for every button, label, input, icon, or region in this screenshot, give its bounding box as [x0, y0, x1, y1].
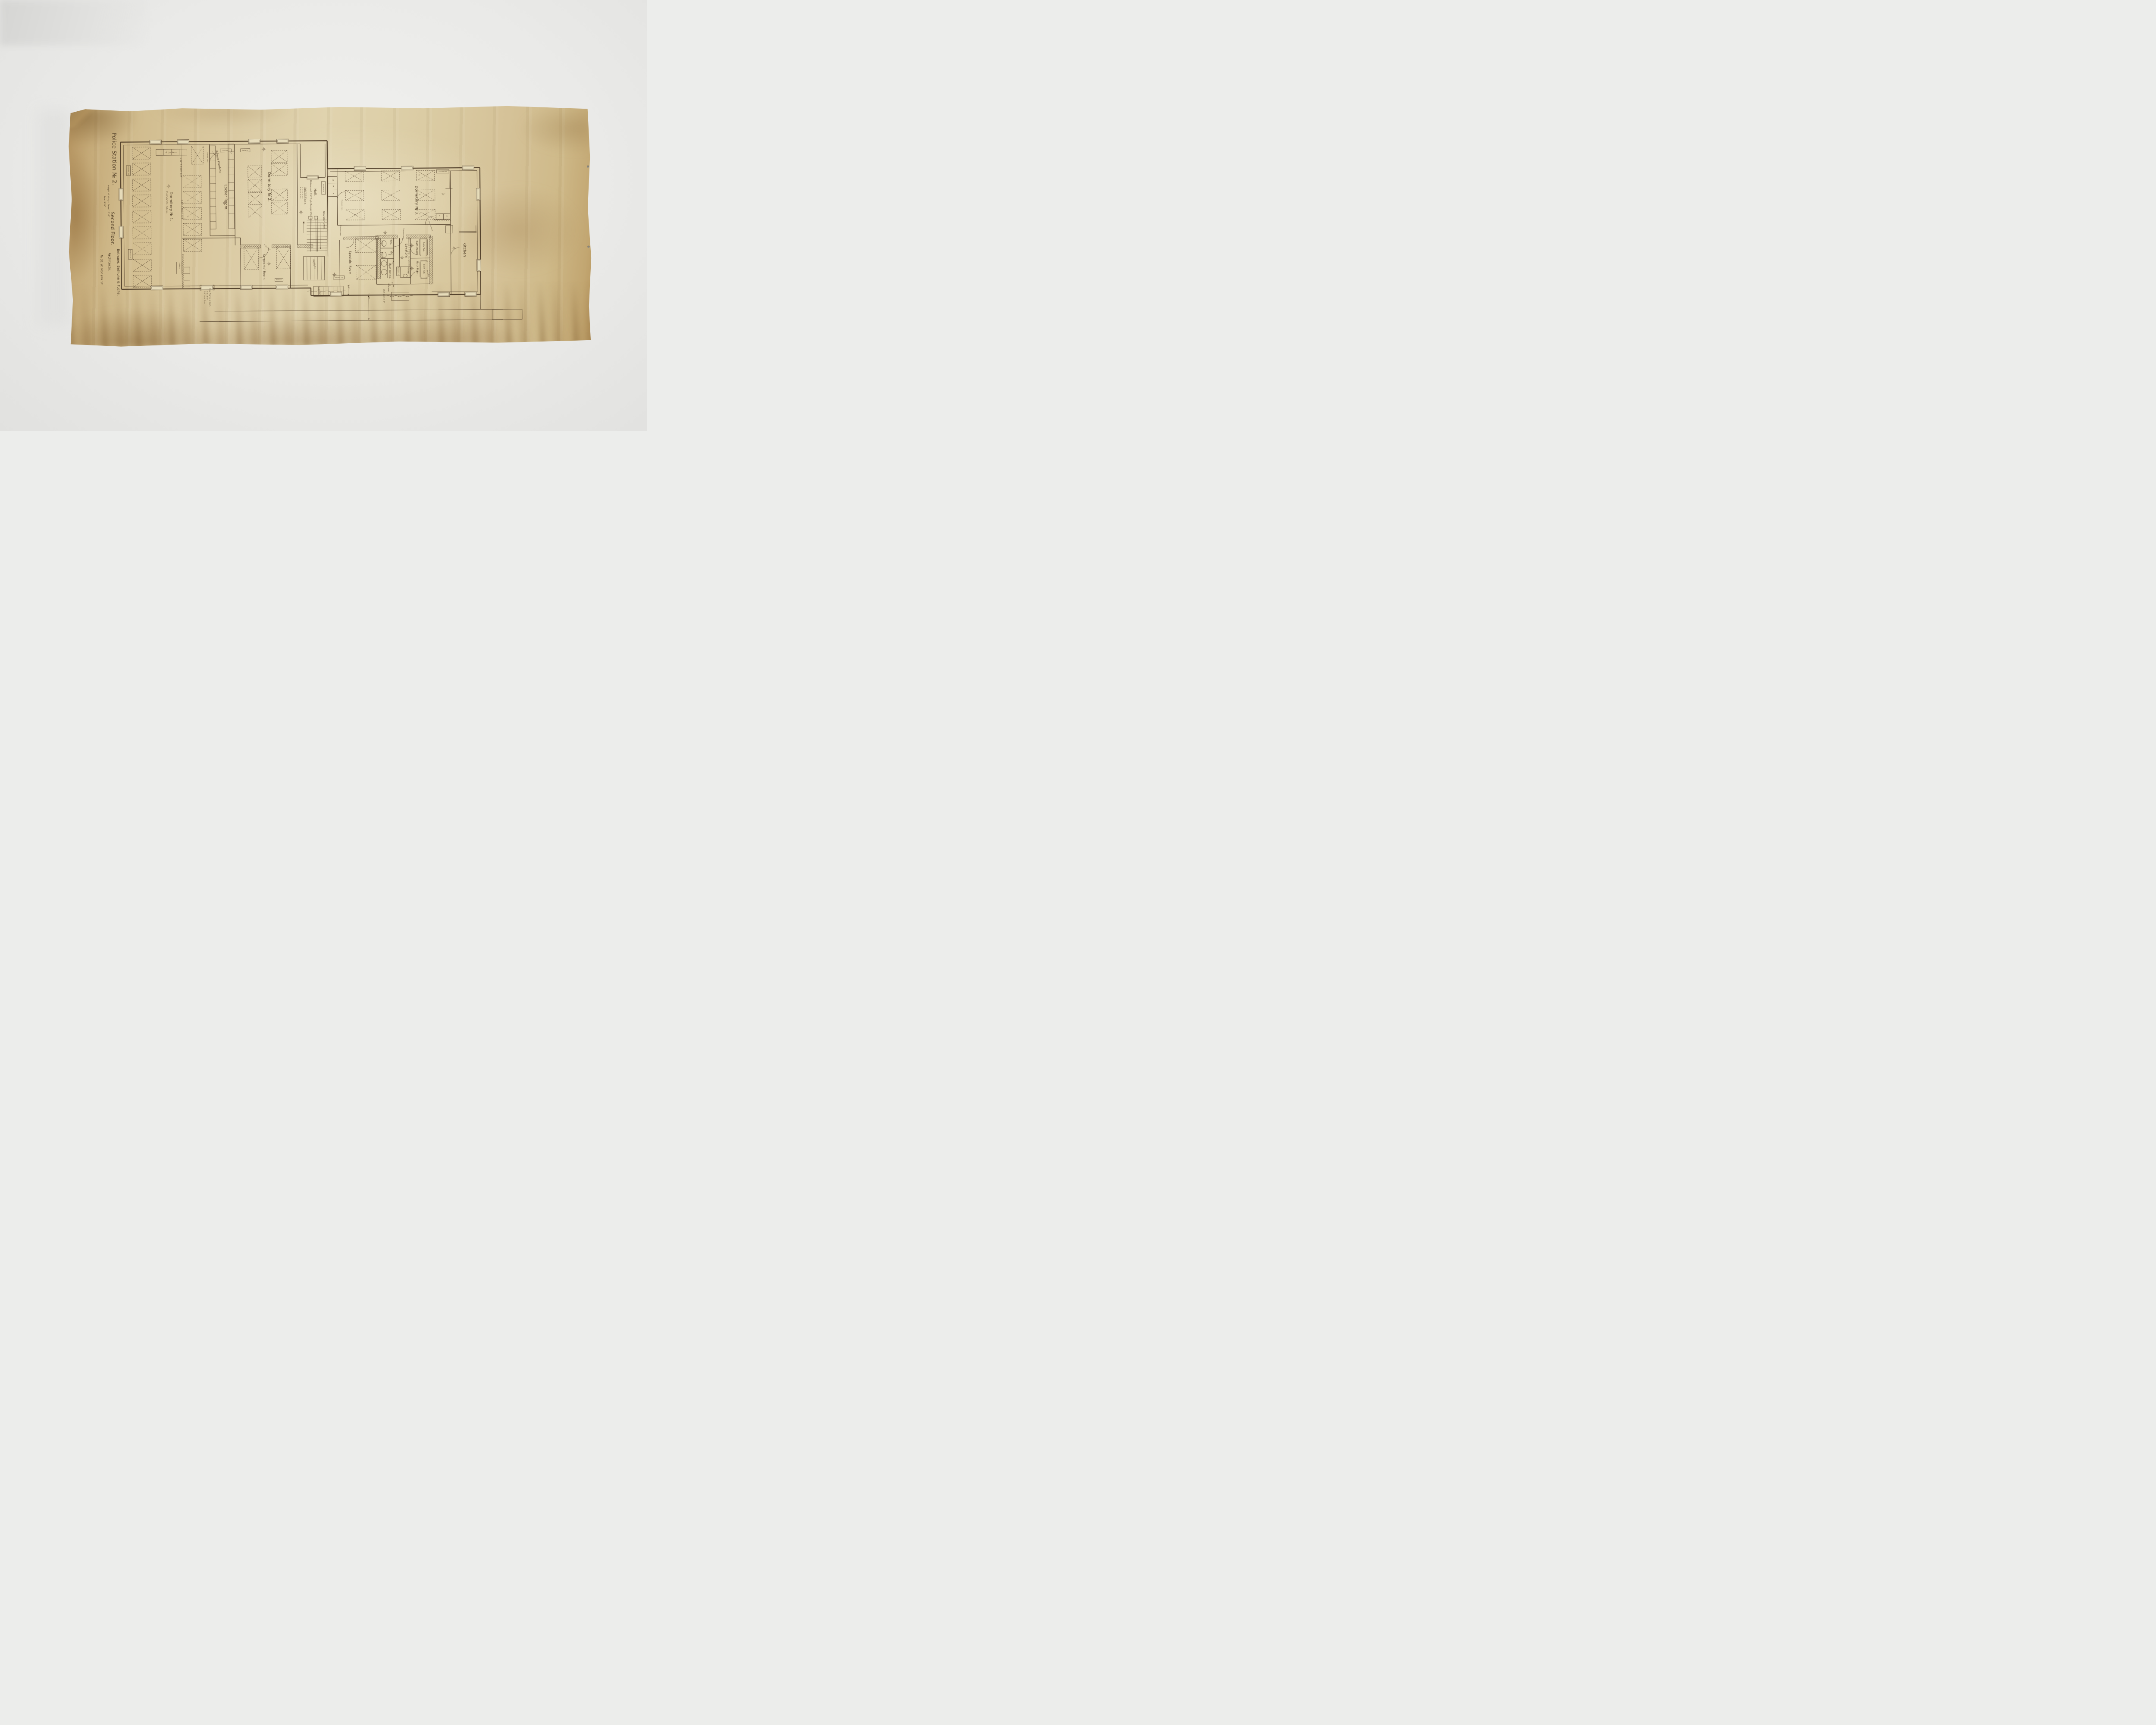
floor-plan-drawing: Police Station № 2. Height of story - Fr…: [94, 126, 526, 326]
label-lockers-box: Lockers.: [179, 263, 181, 269]
note-conductor: Conductor: [388, 283, 389, 292]
bed-cot: [248, 179, 262, 191]
note-wainscot-hall: Wainscoted 5'-6" high Georgia Pine: [309, 180, 312, 217]
toilet-tank-2: [381, 252, 383, 257]
wash-basin-1: [381, 261, 387, 267]
dim-7-0: 7'-0": [348, 285, 349, 289]
window-frame: [150, 140, 162, 144]
bed-cot: [132, 163, 151, 175]
wash-basin-2: [381, 270, 387, 275]
centerline-mark: [267, 261, 271, 266]
window-frame: [151, 286, 163, 290]
note-i-beam-2: 1-12" I. Beam 32#: [181, 200, 183, 220]
note-steps-removed: Steps removed.: [304, 188, 306, 204]
interior-walls: [182, 140, 451, 296]
window: [119, 188, 123, 201]
label-specials-room: Specials' Room.: [348, 251, 352, 276]
label-new-stair: New Stair: [323, 211, 325, 222]
bed-cross-1: [382, 210, 401, 220]
radiator-label: Radiator 30: [397, 267, 399, 276]
centerline-cross: [299, 210, 303, 214]
label-wash-basins: Wash Basins.: [389, 263, 391, 279]
bed-cot: [381, 171, 400, 181]
drawing-sheet-wrapper: Police Station № 2. Height of story - Fr…: [0, 0, 648, 433]
centerline-mark: [299, 210, 303, 214]
radiator-box: Radiator.: [220, 149, 232, 152]
label-wc-2: W.C.: [390, 251, 392, 256]
toilet-2: [382, 252, 386, 258]
title-firm-address: № 31 W. Mohawk St.: [100, 254, 103, 285]
bed-cot: [132, 179, 151, 191]
title-project: Police Station № 2.: [111, 132, 118, 185]
locker-strip-outline: [436, 214, 443, 220]
centerline-mark: [383, 231, 387, 235]
window: [276, 285, 288, 289]
bed-cot: [345, 190, 364, 201]
bed-cot: [248, 192, 262, 204]
toilet-1: [382, 241, 386, 247]
radiator-box: Radiator 45: [437, 169, 449, 173]
pinhole-bottom: [587, 246, 589, 248]
radiator-box: Radiator: [275, 278, 283, 281]
title-sheet: Second Floor.: [110, 212, 116, 245]
bed-cross-1: [382, 190, 400, 201]
note-sash-size: 3'-0 x 6'-0": [206, 291, 208, 300]
locker-no-3: 3: [446, 216, 448, 217]
window: [354, 166, 366, 171]
bed-outline: [345, 171, 364, 181]
photo-backdrop: Police Station № 2. Height of story - Fr…: [0, 0, 647, 431]
centerline-mark: [400, 256, 404, 260]
basin-counter: [381, 259, 388, 278]
bed-cot: [132, 147, 151, 159]
window: [151, 286, 163, 290]
bed-cot: [382, 210, 401, 220]
bed-cot: [183, 191, 201, 204]
label-stair-down: Down.: [323, 223, 325, 229]
locker-strip: [228, 144, 235, 229]
pinhole-top: [587, 166, 589, 168]
paper-fold-corner: [66, 107, 98, 128]
label-hall: Hall.: [313, 188, 317, 196]
bed-cot: [183, 207, 202, 220]
bed-cross-1: [345, 171, 364, 181]
note-wainscot-lavatory: Wainscoted 6'-6" high - Georgia Pine: [408, 237, 410, 267]
bed-cross-2: [382, 190, 400, 201]
radiator-label: Radiator 60: [129, 250, 131, 258]
bed-cot: [355, 238, 376, 252]
radiator-box: Radiator 30: [397, 267, 400, 276]
bed-cot: [271, 189, 287, 201]
note-i-beam-1: 1-12" I. Beam 32#: [179, 157, 182, 177]
window-frame: [201, 285, 213, 290]
window: [477, 260, 481, 272]
centerline-mark: [262, 147, 266, 151]
bed-cot: [183, 176, 201, 188]
centerline-cross: [400, 256, 404, 260]
radiator-box: Radiator 30: [333, 276, 345, 279]
bed-cross-1: [346, 210, 364, 220]
window: [438, 292, 450, 297]
bed-cot: [248, 166, 262, 178]
bed-cot: [272, 202, 288, 214]
locker-strip: [436, 214, 443, 220]
bed-cot: [133, 195, 151, 207]
label-dormitory-no-2: Dormitory № 2.: [267, 172, 271, 202]
note-remove-plumbing: Remove Plumbing.: [215, 150, 222, 174]
centerline-cross: [267, 261, 271, 266]
window-frame: [307, 176, 319, 179]
bed-no-4: 4: [419, 213, 421, 214]
locker-strip-outline: [210, 146, 216, 229]
radiator-label: Radiator 60: [128, 166, 129, 175]
window: [465, 292, 477, 297]
locker-strip-outline: [443, 214, 450, 220]
note-transom-2: Transom over.: [341, 200, 343, 210]
window-frame: [119, 188, 123, 201]
bed-cot: [133, 227, 151, 239]
window-frame: [438, 292, 450, 297]
label-stair-up: Up.: [303, 221, 305, 224]
label-bath-room-1: Bath Room.: [415, 241, 418, 255]
window: [330, 292, 342, 296]
label-dormitory-no-1: Dormitory № 1.: [169, 192, 173, 222]
bed-cot: [271, 151, 287, 163]
centerline-cross: [262, 147, 266, 151]
bed-outline: [381, 171, 400, 181]
bed-cot: [346, 210, 364, 220]
title-firm: Bethune, Bethune & Fuchs,: [116, 249, 121, 296]
radiator-label: Radiator: [276, 279, 282, 281]
bed-cot: [133, 259, 152, 271]
bed-cross-2: [381, 171, 400, 181]
closet-no-9: 9: [332, 185, 335, 187]
dim-12-0: 12'-0": [368, 293, 370, 299]
window-frame: [477, 260, 481, 272]
bed-cross-2: [345, 190, 364, 201]
radiator-box: Radiator 60: [128, 249, 132, 259]
label-wc-1: W.C.: [389, 239, 392, 245]
window-frame: [465, 292, 477, 297]
title-height-note-2: Rear 9'-9": [103, 196, 106, 207]
window: [476, 188, 480, 201]
label-urinal: Urinal: [407, 267, 410, 274]
bed-outline: [382, 190, 400, 201]
bed-cot: [133, 243, 151, 255]
window-frame: [354, 166, 366, 171]
bed-cot: [271, 163, 287, 176]
window-frame: [248, 139, 260, 144]
label-locker-room: Locker Room.: [223, 185, 228, 210]
bed-cot: [345, 171, 364, 181]
window-frame: [401, 166, 414, 170]
locker-strip: [184, 267, 190, 287]
note-transom-1: Transom over.: [207, 152, 208, 163]
window: [177, 140, 189, 144]
label-bath-room-2: Bath Room.: [416, 261, 418, 276]
bed-cot: [356, 265, 376, 279]
label-4-lockers: 4 Lockers.: [166, 151, 178, 154]
centerline-cross: [383, 231, 387, 235]
bed-cot: [183, 223, 202, 235]
outer-walls: [120, 140, 480, 297]
closet-no-11: 11: [332, 179, 335, 181]
bed-cot: [248, 206, 262, 218]
centerline-mark: [451, 246, 456, 250]
bed-cross-2: [382, 210, 401, 220]
toilet-tank-1: [381, 241, 383, 246]
centerline-mark: [332, 273, 336, 277]
radiator-label: Radiator 45: [439, 170, 447, 172]
note-ci-column: 6"x6"x¾" C.I. Column.: [165, 191, 168, 214]
locker-strip: [210, 146, 216, 229]
note-new-frame-sash: New Frame & Sash.: [209, 288, 211, 307]
window: [401, 166, 414, 170]
bed-outline: [345, 190, 364, 201]
bed-no-6: 6: [418, 174, 420, 176]
centerline-cross: [441, 192, 445, 196]
title-block: Police Station № 2. Height of story - Fr…: [99, 132, 121, 296]
label-skylight-6x6: Skylight 6 x 6': [383, 289, 385, 303]
window-frame: [462, 166, 474, 170]
window-frame: [276, 285, 288, 289]
radiator-label: Radiator 30: [335, 276, 343, 278]
closet-no-8: 8: [332, 193, 335, 194]
note-glass-transom: glass Transom: [428, 220, 433, 231]
locker-no-4: 4: [439, 215, 440, 216]
window-frame: [476, 188, 480, 201]
window: [307, 176, 319, 179]
locker-strip-outline: [228, 144, 235, 229]
note-transom-3: Transom over.: [340, 225, 342, 236]
bed-outline: [346, 210, 364, 220]
label-kitchen: Kitchen: [462, 242, 467, 257]
window: [150, 140, 162, 144]
label-bath-tub-2: Bath Tub.: [423, 264, 425, 274]
label-skylight-rear: Skylight: [317, 286, 321, 295]
label-sergeants-room: Sergeants' Room.: [262, 254, 266, 280]
window-frame: [330, 292, 342, 296]
urinal-bowl: [403, 274, 407, 277]
radiator-label: Radiator.: [222, 150, 229, 151]
lockers-layer: [156, 143, 451, 287]
radiator-label: Radiator 30: [323, 184, 324, 192]
window: [277, 139, 289, 143]
label-lavatory: Lavatory.: [404, 244, 408, 258]
note-transom-4: Transom over.: [403, 228, 404, 239]
entry-bay: [300, 144, 325, 178]
bed-outline: [382, 210, 401, 220]
bed-cross-2: [345, 171, 364, 181]
bed-cot: [382, 190, 400, 201]
note-sash-height: 2'-6" from floor: [204, 291, 206, 304]
window: [248, 139, 260, 144]
window: [119, 226, 123, 238]
centerline-mark: [441, 192, 445, 196]
label-skylight-main: Skylight: [312, 259, 317, 269]
bed-cross-2: [346, 210, 364, 220]
window-frame: [119, 226, 123, 238]
window: [240, 285, 252, 289]
radiator-box: Radiator 60: [126, 166, 131, 176]
centerline-cross: [451, 246, 456, 250]
bed-cot: [133, 211, 151, 223]
bed-cross-1: [381, 171, 400, 181]
centerline-cross: [332, 273, 336, 277]
note-door-dim-2: 2'-9 x 6'-9: [263, 244, 271, 251]
kitchen-partitions: [445, 171, 476, 233]
bed-cot: [276, 247, 291, 269]
bed-no-5: 5: [419, 194, 421, 195]
label-dormitory-no-3: Dormitory № 3.: [414, 186, 418, 216]
window-frame: [240, 285, 252, 289]
radiator-box: Radiator.: [241, 149, 250, 152]
bed-cot: [244, 247, 259, 270]
window: [462, 166, 474, 170]
bed-cross-1: [345, 190, 364, 201]
bed-cot: [133, 275, 152, 287]
bed-cot: [191, 146, 204, 164]
title-height-note-1: Height of story - Front 11'-9": [107, 185, 110, 217]
locker-strip-outline: [184, 267, 190, 287]
window-frame: [277, 139, 289, 143]
radiator-box: Radiator 30: [322, 182, 326, 195]
centerline-mark: [166, 184, 171, 188]
window-frame: [177, 140, 189, 144]
note-thimble: Thimble: [426, 270, 429, 277]
bed-cot: [183, 239, 202, 251]
locker-strip: [443, 214, 450, 220]
title-firm-role: Architects.: [107, 253, 111, 271]
centerline-cross: [166, 184, 171, 188]
window: [201, 285, 213, 290]
radiator-label: Radiator.: [242, 149, 249, 151]
label-bath-tub-1: Bath Tub.: [422, 242, 425, 252]
